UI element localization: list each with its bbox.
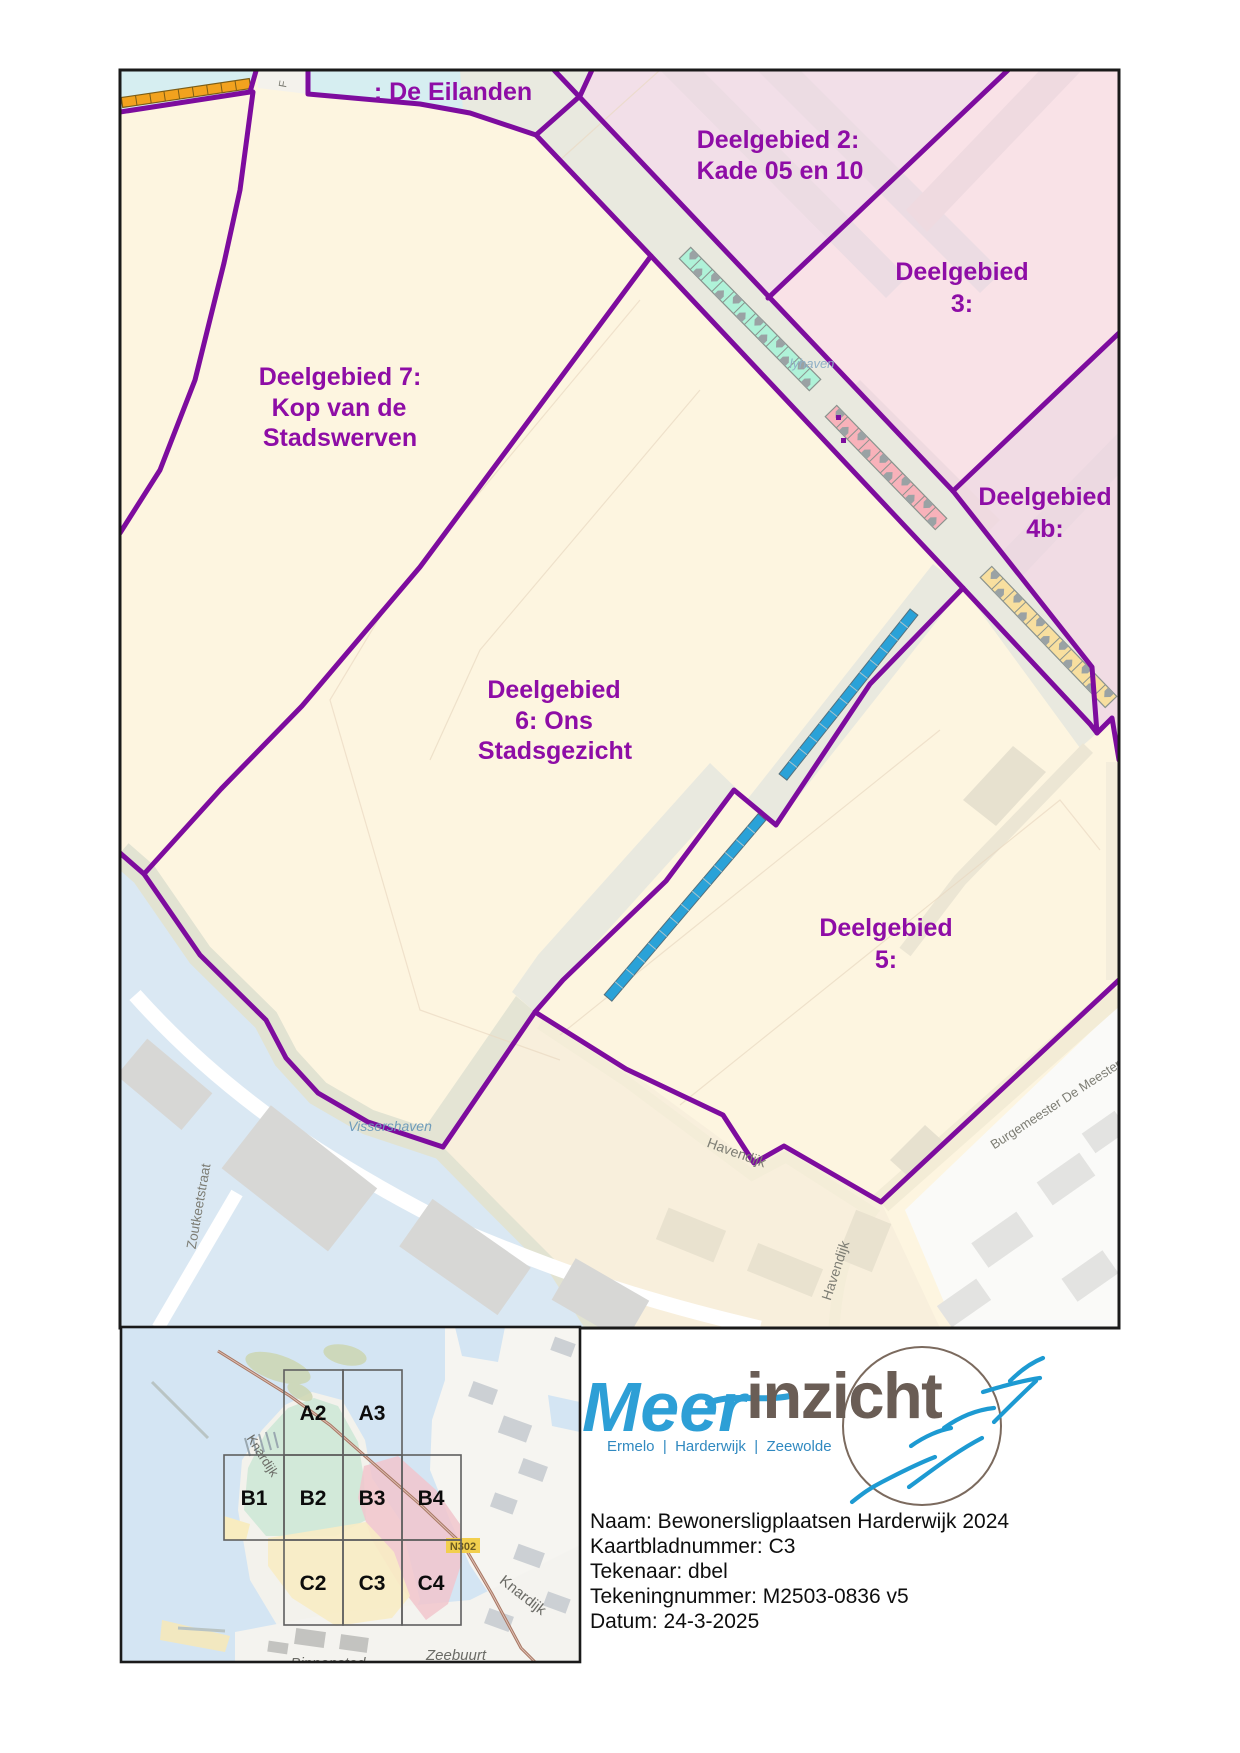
svg-text:Tekenaar: dbel: Tekenaar: dbel [590, 1560, 728, 1583]
svg-text:C2: C2 [300, 1572, 327, 1595]
svg-text:6: Ons: 6: Ons [515, 707, 593, 735]
svg-text:N302: N302 [450, 1541, 476, 1553]
svg-text:Tekeningnummer: M2503-0836 v5: Tekeningnummer: M2503-0836 v5 [590, 1585, 909, 1608]
svg-text:Datum: 24-3-2025: Datum: 24-3-2025 [590, 1610, 759, 1633]
svg-text:Deelgebied: Deelgebied [895, 258, 1028, 286]
svg-text:B3: B3 [359, 1487, 386, 1510]
svg-text:Deelgebied 7:: Deelgebied 7: [259, 363, 422, 391]
svg-text:C3: C3 [359, 1572, 386, 1595]
svg-text:B1: B1 [241, 1487, 268, 1510]
svg-text:: De Eilanden: : De Eilanden [374, 78, 532, 106]
svg-text:A3: A3 [359, 1402, 386, 1425]
svg-text:Deelgebied: Deelgebied [978, 483, 1111, 511]
svg-text:5:: 5: [875, 946, 897, 974]
svg-text:Meer: Meer [582, 1368, 749, 1446]
svg-text:B2: B2 [300, 1487, 327, 1510]
svg-text:Stadsgezicht: Stadsgezicht [478, 737, 633, 765]
svg-text:lyhaven: lyhaven [790, 356, 835, 371]
svg-text:Kade 05 en 10: Kade 05 en 10 [697, 157, 864, 185]
svg-text:A2: A2 [300, 1402, 327, 1425]
svg-text:C4: C4 [418, 1572, 445, 1595]
svg-text:Ermelo | Harderwijk | Zeew: Ermelo | Harderwijk | Zeewolde [607, 1438, 832, 1455]
svg-text:inzicht: inzicht [746, 1359, 942, 1432]
svg-text:Deelgebied 2:: Deelgebied 2: [697, 126, 860, 154]
svg-text:3:: 3: [951, 290, 973, 318]
svg-text:Binnenstad: Binnenstad [290, 1655, 366, 1672]
svg-text:4b:: 4b: [1026, 515, 1064, 543]
svg-text:Kop van de: Kop van de [272, 394, 407, 422]
svg-text:Vissershaven: Vissershaven [348, 1118, 432, 1134]
svg-text:Deelgebied: Deelgebied [487, 676, 620, 704]
svg-text:B4: B4 [418, 1487, 445, 1510]
svg-text:Deelgebied: Deelgebied [819, 914, 952, 942]
svg-text:Kaartbladnummer: C3: Kaartbladnummer: C3 [590, 1535, 795, 1558]
svg-text:Naam: Bewonersligplaatsen Hard: Naam: Bewonersligplaatsen Harderwijk 202… [590, 1510, 1009, 1533]
svg-text:Stadswerven: Stadswerven [263, 424, 417, 452]
